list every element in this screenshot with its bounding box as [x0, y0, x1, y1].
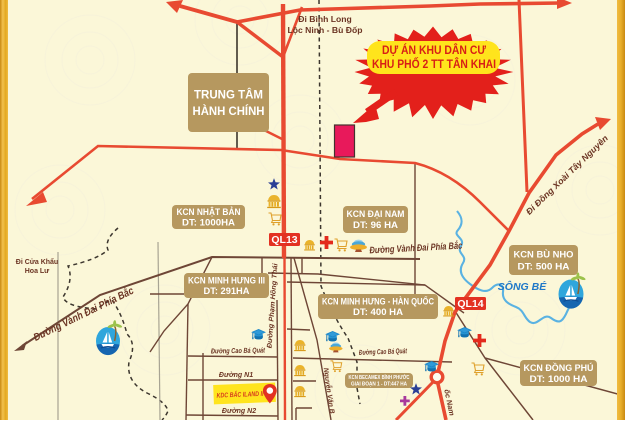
svg-text:DT: 291HA: DT: 291HA — [204, 286, 251, 296]
svg-text:Đi Cửa Khẩu: Đi Cửa Khẩu — [16, 258, 58, 266]
svg-text:DỰ ÁN KHU DÂN CƯ: DỰ ÁN KHU DÂN CƯ — [382, 44, 486, 57]
svg-text:QL14: QL14 — [457, 298, 483, 310]
svg-text:DT: 400 HA: DT: 400 HA — [353, 307, 404, 317]
svg-text:Đi Bình Long: Đi Bình Long — [298, 14, 351, 24]
svg-text:KCN ĐỒNG PHÚ: KCN ĐỒNG PHÚ — [524, 362, 594, 374]
svg-text:KCN NHẬT BẢN: KCN NHẬT BẢN — [177, 206, 241, 217]
svg-text:Đường N2: Đường N2 — [222, 408, 256, 415]
svg-text:DT: 1000HA: DT: 1000HA — [182, 217, 236, 227]
svg-text:QL13: QL13 — [271, 234, 297, 246]
svg-text:Đường N1: Đường N1 — [219, 372, 253, 379]
svg-text:Hoa Lư: Hoa Lư — [25, 268, 50, 275]
svg-text:SÔNG BÉ: SÔNG BÉ — [498, 280, 547, 293]
svg-text:KCN BECAMEX BÌNH PHƯỚC: KCN BECAMEX BÌNH PHƯỚC — [349, 373, 410, 381]
svg-text:DT: 96 HA: DT: 96 HA — [353, 220, 399, 230]
svg-text:KCN MINH HƯNG - HÀN QUỐC: KCN MINH HƯNG - HÀN QUỐC — [322, 295, 434, 306]
svg-text:DT: 500 HA: DT: 500 HA — [518, 261, 570, 272]
svg-text:KHU PHỐ 2 TT TÂN KHAI: KHU PHỐ 2 TT TÂN KHAI — [372, 57, 496, 71]
svg-text:KCN BÙ NHO: KCN BÙ NHO — [514, 248, 574, 260]
svg-text:DT: 1000 HA: DT: 1000 HA — [530, 374, 588, 385]
svg-text:GIAI ĐOẠN 1 - DT:447 HA: GIAI ĐOẠN 1 - DT:447 HA — [351, 382, 407, 388]
svg-text:Lộc Ninh - Bù Đốp: Lộc Ninh - Bù Đốp — [288, 25, 363, 35]
svg-text:HÀNH CHÍNH: HÀNH CHÍNH — [193, 105, 265, 118]
svg-text:Đường Cao Bá Quát: Đường Cao Bá Quát — [359, 346, 408, 357]
svg-text:KCN MINH HƯNG III: KCN MINH HƯNG III — [188, 275, 265, 285]
svg-text:Đường Cao Bá Quát: Đường Cao Bá Quát — [211, 346, 266, 356]
svg-text:KCN ĐẠI NAM: KCN ĐẠI NAM — [347, 209, 405, 219]
svg-text:TRUNG TÂM: TRUNG TÂM — [194, 88, 263, 101]
